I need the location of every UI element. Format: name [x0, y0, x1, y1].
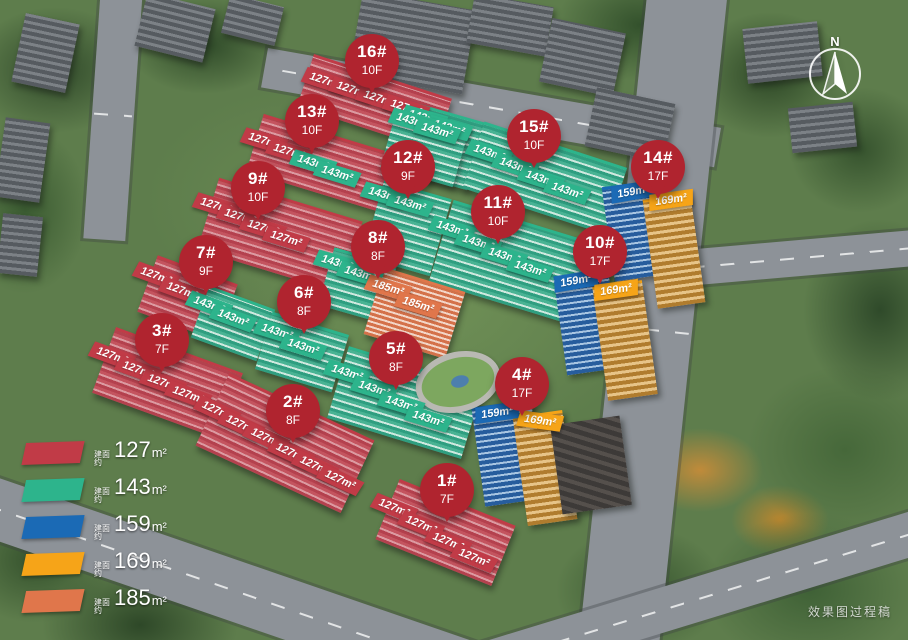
legend-area-unit: m² — [152, 445, 167, 460]
city-building — [788, 102, 857, 154]
building-badge-12: 12# 9F — [381, 140, 435, 194]
badge-floor-count: 8F — [277, 304, 331, 318]
city-building — [466, 0, 553, 57]
compass: N — [805, 36, 865, 102]
building-badge-14: 14# 17F — [631, 140, 685, 194]
badge-building-number: 2# — [266, 392, 320, 412]
building-badge-5: 5# 8F — [369, 331, 423, 385]
legend-prefix: 建面约 — [94, 488, 112, 505]
building-badge-9: 9# 10F — [231, 161, 285, 215]
legend-area-unit: m² — [152, 593, 167, 608]
building-badge-10: 10# 17F — [573, 225, 627, 279]
badge-building-number: 1# — [420, 471, 474, 491]
badge-building-number: 12# — [381, 148, 435, 168]
compass-north-label: N — [830, 34, 839, 49]
legend-color-swatch — [21, 515, 84, 539]
building-badge-8: 8# 8F — [351, 220, 405, 274]
badge-building-number: 13# — [285, 102, 339, 122]
badge-building-number: 15# — [507, 117, 561, 137]
badge-floor-count: 17F — [573, 254, 627, 268]
badge-building-number: 6# — [277, 283, 331, 303]
badge-building-number: 14# — [631, 148, 685, 168]
building-badge-13: 13# 10F — [285, 94, 339, 148]
legend-row-169: 建面约 169 m² — [24, 551, 167, 577]
building-badge-7: 7# 9F — [179, 235, 233, 289]
legend-area-value: 169 — [114, 550, 151, 572]
road-bottom-right — [474, 507, 908, 640]
legend-row-143: 建面约 143 m² — [24, 477, 167, 503]
building-badge-4: 4# 17F — [495, 357, 549, 411]
badge-floor-count: 8F — [266, 413, 320, 427]
badge-building-number: 16# — [345, 42, 399, 62]
legend-row-159: 建面约 159 m² — [24, 514, 167, 540]
badge-floor-count: 10F — [285, 123, 339, 137]
badge-floor-count: 9F — [179, 264, 233, 278]
road-east-branch — [679, 230, 908, 287]
building-badge-1: 1# 7F — [420, 463, 474, 517]
legend-area-value: 159 — [114, 513, 151, 535]
building-badge-11: 11# 10F — [471, 185, 525, 239]
badge-floor-count: 10F — [345, 63, 399, 77]
badge-building-number: 11# — [471, 193, 525, 213]
city-building — [221, 0, 284, 46]
legend-color-swatch — [21, 441, 84, 465]
legend-area-value: 143 — [114, 476, 151, 498]
badge-floor-count: 7F — [420, 492, 474, 506]
city-building — [539, 18, 626, 97]
badge-floor-count: 10F — [471, 214, 525, 228]
building-badge-15: 15# 10F — [507, 109, 561, 163]
clubhouse-building — [550, 416, 632, 515]
badge-floor-count: 8F — [369, 360, 423, 374]
legend-prefix: 建面约 — [94, 562, 112, 579]
legend-color-swatch — [21, 589, 84, 613]
legend-area-unit: m² — [152, 482, 167, 497]
road-top-left-vertical — [83, 0, 142, 241]
badge-floor-count: 7F — [135, 342, 189, 356]
badge-building-number: 10# — [573, 233, 627, 253]
badge-building-number: 5# — [369, 339, 423, 359]
badge-building-number: 8# — [351, 228, 405, 248]
badge-floor-count: 8F — [351, 249, 405, 263]
city-building — [0, 213, 43, 277]
badge-building-number: 9# — [231, 169, 285, 189]
badge-floor-count: 17F — [631, 169, 685, 183]
city-building — [0, 117, 50, 202]
city-building — [134, 0, 215, 63]
building-badge-3: 3# 7F — [135, 313, 189, 367]
legend-area-value: 185 — [114, 587, 151, 609]
legend-row-185: 建面约 185 m² — [24, 588, 167, 614]
building-badge-6: 6# 8F — [277, 275, 331, 329]
legend-prefix: 建面约 — [94, 525, 112, 542]
legend-color-swatch — [21, 552, 84, 576]
building-badge-2: 2# 8F — [266, 384, 320, 438]
legend-area-value: 127 — [114, 439, 151, 461]
legend-row-127: 建面约 127 m² — [24, 440, 167, 466]
legend-prefix: 建面约 — [94, 599, 112, 616]
watermark-text: 效果图过程稿 — [808, 603, 892, 620]
badge-building-number: 3# — [135, 321, 189, 341]
legend-area-unit: m² — [152, 519, 167, 534]
building-badge-16: 16# 10F — [345, 34, 399, 88]
badge-building-number: 7# — [179, 243, 233, 263]
badge-floor-count: 10F — [507, 138, 561, 152]
legend-color-swatch — [21, 478, 84, 502]
badge-floor-count: 17F — [495, 386, 549, 400]
badge-floor-count: 10F — [231, 190, 285, 204]
masterplan-rendering: 127m²127m²127m²127m²143m²143m²127m²127m²… — [0, 0, 908, 640]
legend-prefix: 建面约 — [94, 451, 112, 468]
plaza-pond — [450, 373, 470, 389]
city-building — [11, 13, 79, 93]
badge-floor-count: 9F — [381, 169, 435, 183]
legend-area-unit: m² — [152, 556, 167, 571]
badge-building-number: 4# — [495, 365, 549, 385]
area-legend: 建面约 127 m² 建面约 143 m² 建面约 159 m² 建面约 169 — [24, 440, 167, 625]
